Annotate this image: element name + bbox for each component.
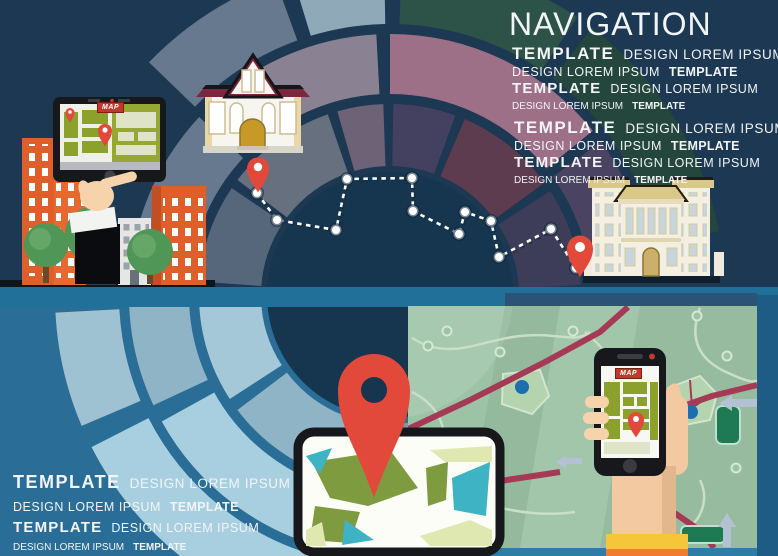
- sleeve-cuff: [606, 534, 688, 549]
- house-door: [240, 119, 265, 148]
- phone-home-button: [623, 459, 637, 473]
- template-line: DESIGN LOREM IPSUMTEMPLATE: [512, 98, 778, 114]
- template-line: TEMPLATEDESIGN LOREM IPSUM: [514, 118, 778, 138]
- template-line: TEMPLATEDESIGN LOREM IPSUM: [514, 154, 778, 172]
- template-line: DESIGN LOREM IPSUMTEMPLATE: [514, 138, 778, 154]
- template-line: DESIGN LOREM IPSUMTEMPLATE: [512, 64, 778, 80]
- template-line: DESIGN LOREM IPSUMTEMPLATE: [13, 496, 291, 518]
- phone-map-label: MAP: [615, 368, 642, 379]
- text-block-bottom-left: TEMPLATEDESIGN LOREM IPSUM DESIGN LOREM …: [13, 470, 291, 556]
- horizon-band-dark: [505, 293, 757, 307]
- map-poi-dot: [515, 380, 529, 394]
- template-line: TEMPLATEDESIGN LOREM IPSUM: [512, 44, 778, 64]
- classical-building: [583, 177, 724, 283]
- navigation-infographic: NAVIGATION TEMPLATEDESIGN LOREM IPSUM DE…: [0, 0, 778, 556]
- text-block-top-a: TEMPLATEDESIGN LOREM IPSUM DESIGN LOREM …: [512, 44, 778, 114]
- tablet-map-label: MAP: [97, 102, 124, 113]
- template-line: TEMPLATEDESIGN LOREM IPSUM: [512, 80, 778, 98]
- template-line: TEMPLATEDESIGN LOREM IPSUM: [13, 518, 291, 538]
- template-line: DESIGN LOREM IPSUMTEMPLATE: [13, 538, 291, 556]
- right-edge-strip: [757, 295, 778, 556]
- page-title: NAVIGATION: [509, 6, 712, 43]
- template-line: DESIGN LOREM IPSUMTEMPLATE: [514, 172, 778, 188]
- text-block-top-b: TEMPLATEDESIGN LOREM IPSUM DESIGN LOREM …: [514, 118, 778, 188]
- building-door: [643, 248, 659, 276]
- template-line: TEMPLATEDESIGN LOREM IPSUM: [13, 470, 291, 496]
- gripping-fingers: [583, 396, 609, 440]
